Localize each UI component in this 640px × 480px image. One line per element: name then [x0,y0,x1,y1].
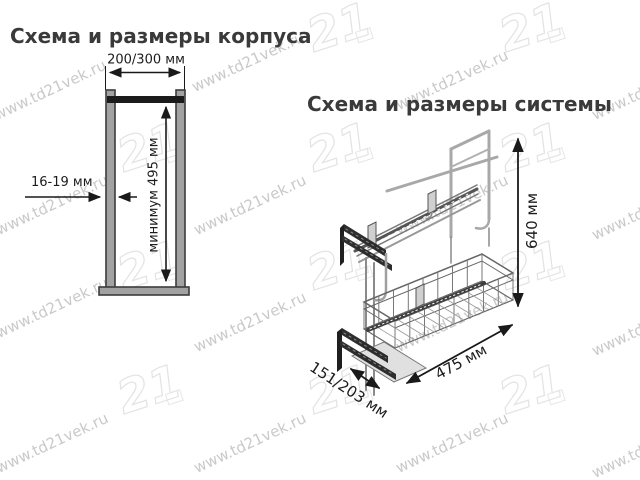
system-width-label: 151/203 мм [306,358,391,422]
labels-layer: Схема и размеры корпуса Схема и размеры … [0,0,640,480]
system-title: Схема и размеры системы [307,92,612,116]
corpus-title: Схема и размеры корпуса [10,24,311,48]
diagram-page: www.td21vek.ru www.td21vek.ru www.td21ve… [0,0,640,480]
corpus-thickness-label: 16-19 мм [31,175,93,190]
corpus-height-label: минимум 495 мм [147,137,162,252]
corpus-width-label: 200/300 мм [107,53,185,68]
system-height-label: 640 мм [523,193,541,249]
system-depth-label: 475 мм [432,341,490,384]
